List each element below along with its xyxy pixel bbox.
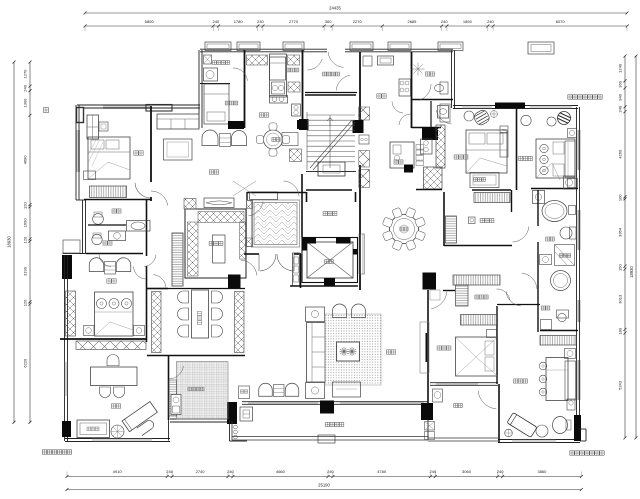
svg-text:240: 240: [327, 469, 334, 474]
svg-text:240: 240: [213, 19, 220, 24]
svg-text:120: 120: [23, 299, 28, 306]
svg-text:240: 240: [618, 105, 623, 112]
svg-text:1780: 1780: [234, 19, 244, 24]
svg-text:25190: 25190: [318, 483, 330, 488]
svg-text:940: 940: [618, 93, 623, 100]
svg-text:18930: 18930: [7, 236, 12, 248]
svg-text:240: 240: [487, 19, 494, 24]
svg-text:1240: 1240: [618, 63, 623, 73]
svg-text:240: 240: [497, 469, 504, 474]
svg-text:240: 240: [227, 469, 234, 474]
svg-text:5800: 5800: [145, 19, 155, 24]
svg-text:6220: 6220: [23, 358, 28, 368]
svg-text:240: 240: [430, 469, 437, 474]
svg-text:1300: 1300: [23, 98, 28, 108]
svg-text:3364: 3364: [618, 227, 623, 237]
svg-text:3060: 3060: [462, 469, 472, 474]
svg-text:120: 120: [23, 202, 28, 209]
svg-text:3860: 3860: [537, 469, 547, 474]
svg-text:240: 240: [441, 19, 448, 24]
svg-text:4260: 4260: [618, 149, 623, 159]
svg-text:4660: 4660: [276, 469, 286, 474]
svg-text:4910: 4910: [113, 469, 123, 474]
svg-text:6070: 6070: [556, 19, 566, 24]
svg-text:120: 120: [23, 236, 28, 243]
svg-text:2270: 2270: [353, 19, 363, 24]
svg-text:2770: 2770: [289, 19, 299, 24]
svg-text:240: 240: [23, 84, 28, 91]
svg-text:2740: 2740: [196, 469, 206, 474]
svg-text:TV: TV: [502, 128, 506, 132]
svg-text:1690: 1690: [23, 218, 28, 228]
svg-text:5243: 5243: [618, 380, 623, 390]
svg-text:360: 360: [618, 80, 623, 87]
svg-text:2685: 2685: [407, 19, 417, 24]
svg-text:240: 240: [166, 469, 173, 474]
svg-text:4690: 4690: [23, 155, 28, 165]
svg-text:150: 150: [618, 263, 623, 270]
svg-text:1270: 1270: [23, 69, 28, 79]
svg-text:4780: 4780: [377, 469, 387, 474]
svg-text:230: 230: [257, 19, 264, 24]
svg-text:3013: 3013: [618, 294, 623, 304]
svg-text:1850: 1850: [463, 19, 473, 24]
svg-text:100: 100: [618, 194, 623, 201]
svg-text:3190: 3190: [23, 266, 28, 276]
svg-text:360: 360: [325, 19, 332, 24]
svg-text:24435: 24435: [329, 6, 341, 11]
svg-text:180: 180: [618, 327, 623, 334]
svg-text:18930: 18930: [629, 266, 634, 278]
